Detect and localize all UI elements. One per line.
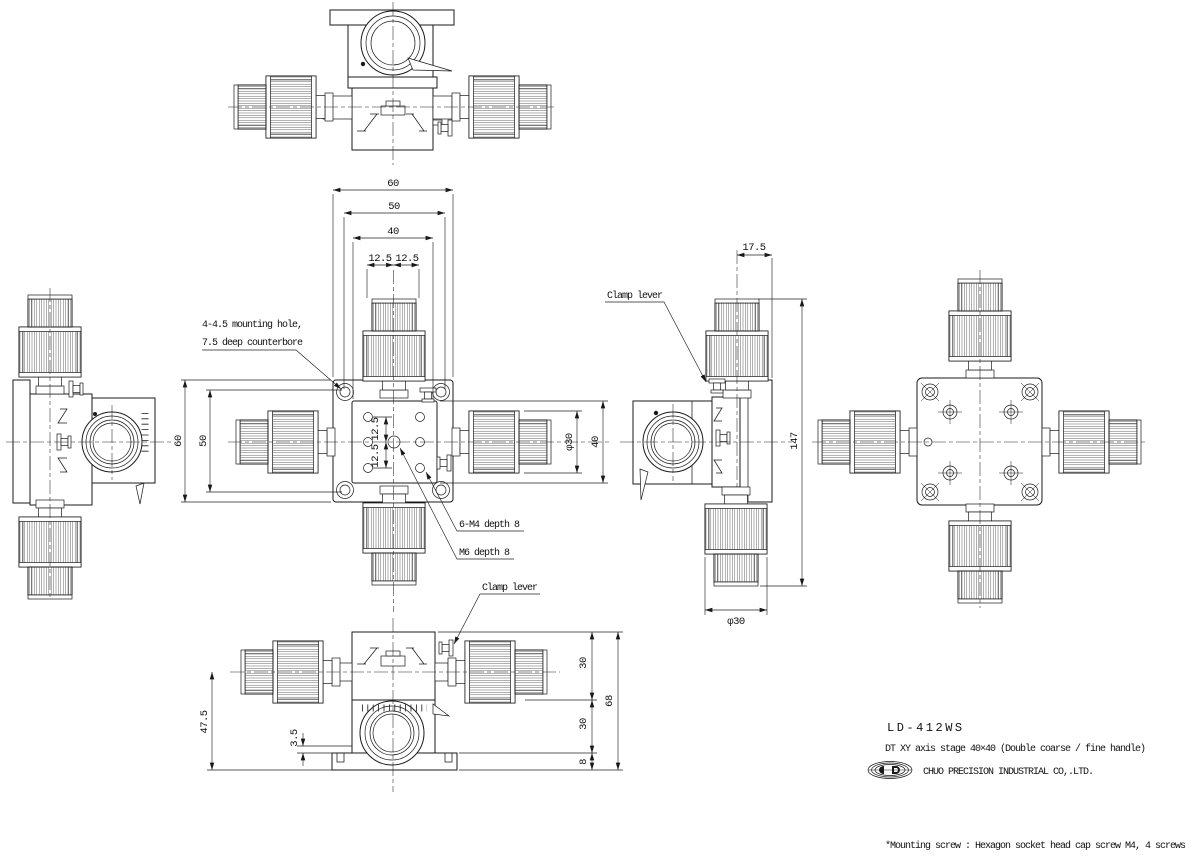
dim-front-upper-body: 30 <box>578 657 590 669</box>
dim-plan-stage-height: 40 <box>590 436 602 448</box>
view-top-elevation <box>228 2 557 165</box>
dim-side-knob-dia: φ30 <box>727 616 745 628</box>
dim-plan-pitch-left: 12.5 <box>368 253 391 265</box>
label-m4-holes: 6-M4 depth 8 <box>459 519 520 531</box>
company-name: CHUO PRECISION INDUSTRIAL CO,.LTD. <box>923 767 1093 778</box>
dim-plan-width-holes: 50 <box>388 201 400 213</box>
footnote-mounting-screw: *Mounting screw : Hexagon socket head ca… <box>885 840 1186 852</box>
index-dot <box>93 412 97 416</box>
label-clamp-lever-bottom: Clamp lever <box>482 582 538 594</box>
view-front-elevation <box>230 618 560 792</box>
dim-plan-height-outer: 60 <box>173 435 185 447</box>
pointer-wedge <box>136 483 144 504</box>
drawing-sheet: 60 50 40 12.5 12.5 60 50 12.5 12.5 φ30 4… <box>0 0 1200 858</box>
title-block: LD-412WS DT XY axis stage 40×40 (Double … <box>868 721 1145 779</box>
pointer-wedge <box>433 704 449 716</box>
label-clamp-lever-right: Clamp lever <box>607 290 663 302</box>
dim-front-base-step: 3.5 <box>289 729 301 747</box>
model-number: LD-412WS <box>887 721 965 735</box>
product-description: DT XY axis stage 40×40 (Double coarse / … <box>885 743 1145 755</box>
index-dot <box>361 62 365 66</box>
view-left-side <box>6 288 172 600</box>
dim-plan-width-stage: 40 <box>387 226 399 238</box>
dim-plan-pitch-right: 12.5 <box>395 253 418 265</box>
index-dot <box>654 411 658 415</box>
dim-front-handle-height: 47.5 <box>199 710 211 733</box>
dim-side-total-height: 147 <box>789 432 801 450</box>
company-logo-icon <box>868 762 912 779</box>
m4-tapped-hole <box>416 464 425 473</box>
dim-front-total-height: 68 <box>604 695 616 707</box>
label-mounting-hole-line1: 4-4.5 mounting hole, <box>202 319 302 331</box>
dim-plan-width-outer: 60 <box>387 178 399 190</box>
view-bottom-face <box>812 270 1148 608</box>
dim-side-knob-offset: 17.5 <box>742 242 765 254</box>
label-m6-hole: M6 depth 8 <box>459 547 510 559</box>
dim-front-lower-body: 30 <box>578 718 590 730</box>
dim-front-base-height: 8 <box>578 759 590 765</box>
dim-plan-pitch-lower: 12.5 <box>370 444 382 467</box>
dim-plan-knob-dia: φ30 <box>564 433 576 451</box>
m4-tapped-hole <box>416 413 425 422</box>
dim-plan-height-holes: 50 <box>198 435 210 447</box>
dim-plan-pitch-upper: 12.5 <box>370 417 382 440</box>
engineering-drawing: 60 50 40 12.5 12.5 60 50 12.5 12.5 φ30 4… <box>0 0 1200 858</box>
label-mounting-hole-line2: 7.5 deep counterbore <box>202 337 303 349</box>
